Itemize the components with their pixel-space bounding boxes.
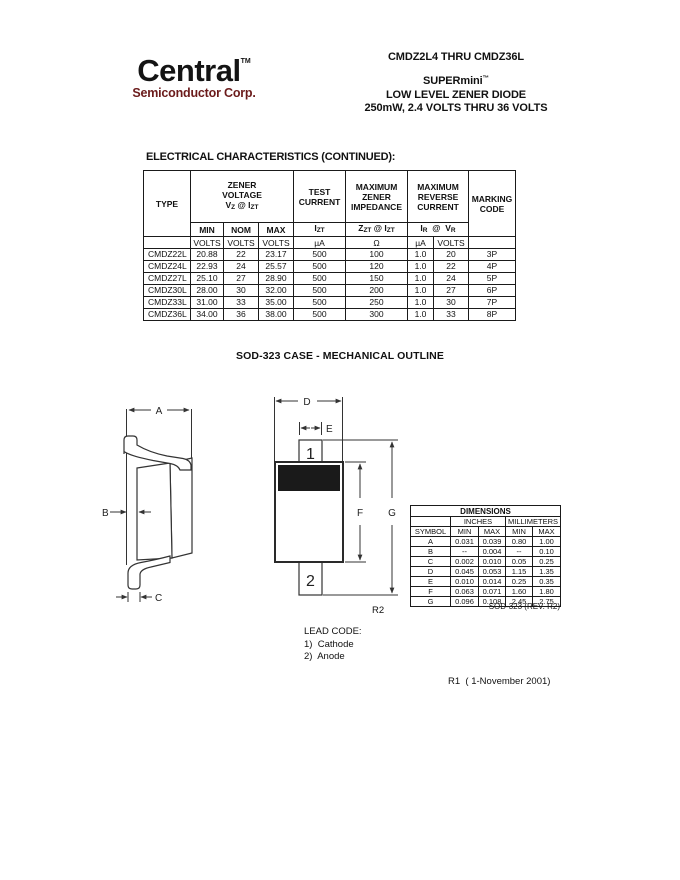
bottom-lead [128, 556, 170, 589]
mark-line2: CODE [469, 204, 515, 214]
cell-min: 20.88 [191, 249, 224, 261]
dim-mm-min: 0.80 [506, 537, 533, 547]
cell-vr: 20 [434, 249, 469, 261]
cell-max: 35.00 [259, 297, 294, 309]
product-specs: 250mW, 2.4 VOLTS THRU 36 VOLTS [345, 102, 567, 116]
cell-code: 8P [469, 309, 516, 321]
dim-label-f: F [357, 508, 363, 519]
head-symbol: SYMBOL [411, 527, 451, 537]
dim-symbol: C [411, 557, 451, 567]
dim-in-min: -- [451, 547, 479, 557]
family-trademark: ™ [483, 75, 489, 82]
table-row: CMDZ33L 31.00 33 35.00 500 250 1.0 30 7P [144, 297, 516, 309]
brand-name: CentralTM [117, 47, 271, 86]
cell-zzt: 200 [346, 285, 408, 297]
company-logo: CentralTM Semiconductor Corp. [117, 47, 271, 100]
units-blank-marking [469, 237, 516, 249]
dim-label-b: B [102, 508, 109, 519]
dim-label-g: G [388, 508, 396, 519]
cell-type: CMDZ36L [144, 309, 191, 321]
title-block: CMDZ2L4 THRU CMDZ36L SUPERmini™ LOW LEVE… [345, 51, 567, 116]
dim-row: C 0.002 0.010 0.05 0.25 [411, 557, 561, 567]
dim-in-max: 0.010 [479, 557, 506, 567]
dim-mm-min: 0.05 [506, 557, 533, 567]
col-header-marking-code: MARKING CODE [469, 171, 516, 237]
cell-type: CMDZ27L [144, 273, 191, 285]
group-millimeters: MILLIMETERS [506, 517, 561, 527]
cell-type: CMDZ33L [144, 297, 191, 309]
cell-nom: 24 [224, 261, 259, 273]
dim-label-e: E [326, 424, 333, 435]
test-line1: TEST [294, 187, 345, 197]
brand-name-text: Central [137, 53, 240, 88]
units-blank-type [144, 237, 191, 249]
head-mm-min: MIN [506, 527, 533, 537]
table-row: CMDZ27L 25.10 27 28.90 500 150 1.0 24 5P [144, 273, 516, 285]
cathode-band [278, 465, 340, 491]
vz-at: @ I [235, 200, 250, 210]
dim-mm-min: 1.15 [506, 567, 533, 577]
subheader-zzt: ZZT @ IZT [346, 223, 408, 237]
dim-label-d: D [303, 397, 310, 408]
cell-code: 4P [469, 261, 516, 273]
cell-min: 25.10 [191, 273, 224, 285]
dimensions-table: DIMENSIONS INCHES MILLIMETERS SYMBOL MIN… [410, 505, 561, 607]
cell-vr: 33 [434, 309, 469, 321]
dim-mm-min: -- [506, 547, 533, 557]
units-ua-izt: µA [294, 237, 346, 249]
cell-min: 22.93 [191, 261, 224, 273]
cell-vr: 27 [434, 285, 469, 297]
cell-code: 6P [469, 285, 516, 297]
package-side-view-drawing: A B C [95, 395, 265, 620]
dim-row: D 0.045 0.053 1.15 1.35 [411, 567, 561, 577]
cell-ir: 1.0 [408, 297, 434, 309]
head-in-min: MIN [451, 527, 479, 537]
col-header-max-reverse-current: MAXIMUM REVERSE CURRENT [408, 171, 469, 223]
dim-mm-min: 0.25 [506, 577, 533, 587]
test-line2: CURRENT [294, 197, 345, 207]
cell-ir: 1.0 [408, 249, 434, 261]
imp-line1: MAXIMUM [346, 182, 407, 192]
dim-symbol: D [411, 567, 451, 577]
cell-max: 32.00 [259, 285, 294, 297]
product-subtitles: SUPERmini™ LOW LEVEL ZENER DIODE 250mW, … [345, 72, 567, 116]
cell-nom: 33 [224, 297, 259, 309]
table-row: CMDZ30L 28.00 30 32.00 500 200 1.0 27 6P [144, 285, 516, 297]
imp-line3: IMPEDANCE [346, 202, 407, 212]
dim-in-min: 0.045 [451, 567, 479, 577]
imp-line2: ZENER [346, 192, 407, 202]
zener-line2: VOLTAGE [191, 190, 293, 200]
cell-vr: 30 [434, 297, 469, 309]
trademark-mark: TM [241, 58, 251, 65]
table-row: CMDZ24L 22.93 24 25.57 500 120 1.0 22 4P [144, 261, 516, 273]
units-ohm: Ω [346, 237, 408, 249]
cell-code: 3P [469, 249, 516, 261]
dim-mm-max: 1.80 [533, 587, 561, 597]
revision-note: R1 ( 1-November 2001) [448, 676, 550, 687]
units-volts-nom: VOLTS [224, 237, 259, 249]
cell-max: 28.90 [259, 273, 294, 285]
subheader-min: MIN [191, 223, 224, 237]
units-volts-max: VOLTS [259, 237, 294, 249]
cell-vr: 24 [434, 273, 469, 285]
units-volts-min: VOLTS [191, 237, 224, 249]
dim-in-max: 0.014 [479, 577, 506, 587]
col-header-zener-voltage: ZENER VOLTAGE VZ @ IZT [191, 171, 294, 223]
head-mm-max: MAX [533, 527, 561, 537]
subheader-max: MAX [259, 223, 294, 237]
cell-zzt: 100 [346, 249, 408, 261]
cell-ir: 1.0 [408, 285, 434, 297]
dim-in-min: 0.002 [451, 557, 479, 567]
head-in-max: MAX [479, 527, 506, 537]
table-row: CMDZ22L 20.88 22 23.17 500 100 1.0 20 3P [144, 249, 516, 261]
lead-code-title: LEAD CODE: [304, 626, 362, 639]
cell-izt: 500 [294, 285, 346, 297]
cell-nom: 36 [224, 309, 259, 321]
dim-row: F 0.063 0.071 1.60 1.80 [411, 587, 561, 597]
dim-in-min: 0.063 [451, 587, 479, 597]
body-side-face [170, 458, 192, 558]
dim-row: E 0.010 0.014 0.25 0.35 [411, 577, 561, 587]
cell-izt: 500 [294, 261, 346, 273]
cell-ir: 1.0 [408, 261, 434, 273]
col-header-max-impedance: MAXIMUM ZENER IMPEDANCE [346, 171, 408, 223]
vz-izt-sub: ZT [251, 204, 259, 211]
family-name: SUPERmini™ [345, 72, 567, 89]
dim-mm-max: 1.35 [533, 567, 561, 577]
cell-zzt: 150 [346, 273, 408, 285]
mechanical-outline-heading: SOD-323 CASE - MECHANICAL OUTLINE [0, 350, 680, 362]
cell-zzt: 120 [346, 261, 408, 273]
cell-nom: 30 [224, 285, 259, 297]
lead-code-anode: 2) Anode [304, 651, 362, 664]
dim-in-min: 0.031 [451, 537, 479, 547]
zener-line1: ZENER [191, 180, 293, 190]
product-type: LOW LEVEL ZENER DIODE [345, 89, 567, 103]
vz-at-izt: VZ @ IZT [191, 200, 293, 213]
subheader-ir-vr: IR @ VR [408, 223, 469, 237]
dim-symbol: E [411, 577, 451, 587]
units-ua-ir: µA [408, 237, 434, 249]
rev-line3: CURRENT [408, 202, 468, 212]
dim-mm-max: 0.10 [533, 547, 561, 557]
izt-sub: ZT [317, 227, 325, 234]
cell-izt: 500 [294, 309, 346, 321]
units-volts-vr: VOLTS [434, 237, 469, 249]
cell-max: 25.57 [259, 261, 294, 273]
vr-sub: R [451, 227, 456, 234]
group-blank [411, 517, 451, 527]
package-top-view-drawing: D E 1 2 F G [265, 385, 405, 617]
cell-max: 23.17 [259, 249, 294, 261]
cell-zzt: 300 [346, 309, 408, 321]
pin2-label: 2 [306, 573, 315, 590]
dim-label-c: C [155, 593, 162, 604]
cell-zzt: 250 [346, 297, 408, 309]
cell-izt: 500 [294, 297, 346, 309]
cell-type: CMDZ24L [144, 261, 191, 273]
dim-symbol: F [411, 587, 451, 597]
dim-in-max: 0.053 [479, 567, 506, 577]
cell-type: CMDZ22L [144, 249, 191, 261]
dim-in-min: 0.010 [451, 577, 479, 587]
dim-symbol: A [411, 537, 451, 547]
cell-ir: 1.0 [408, 273, 434, 285]
cell-min: 28.00 [191, 285, 224, 297]
family-text: SUPERmini [423, 75, 483, 87]
dim-symbol: B [411, 547, 451, 557]
zzt-at: @ I [371, 223, 386, 233]
dimensions-title: DIMENSIONS [411, 506, 561, 517]
dim-in-max: 0.004 [479, 547, 506, 557]
cell-vr: 22 [434, 261, 469, 273]
cell-max: 38.00 [259, 309, 294, 321]
rev-line1: MAXIMUM [408, 182, 468, 192]
cell-min: 34.00 [191, 309, 224, 321]
rev-line2: REVERSE [408, 192, 468, 202]
cell-min: 31.00 [191, 297, 224, 309]
dim-row: A 0.031 0.039 0.80 1.00 [411, 537, 561, 547]
dim-mm-max: 1.00 [533, 537, 561, 547]
cell-izt: 500 [294, 249, 346, 261]
cell-nom: 27 [224, 273, 259, 285]
part-range-title: CMDZ2L4 THRU CMDZ36L [345, 51, 567, 63]
dim-label-a: A [156, 406, 163, 417]
dim-mm-min: 1.60 [506, 587, 533, 597]
subheader-nom: NOM [224, 223, 259, 237]
dim-row: B -- 0.004 -- 0.10 [411, 547, 561, 557]
col-header-type: TYPE [144, 171, 191, 237]
dims-table-footnote: SOD-323 (REV. R2) [410, 602, 560, 611]
lead-code-cathode: 1) Cathode [304, 639, 362, 652]
lead-code-block: LEAD CODE: 1) Cathode 2) Anode [304, 626, 362, 664]
pin1-label: 1 [306, 446, 315, 463]
col-header-test-current: TEST CURRENT [294, 171, 346, 223]
brand-tagline: Semiconductor Corp. [117, 86, 271, 100]
cell-nom: 22 [224, 249, 259, 261]
cell-code: 5P [469, 273, 516, 285]
cell-type: CMDZ30L [144, 285, 191, 297]
cell-ir: 1.0 [408, 309, 434, 321]
ir-at-vr: @ V [427, 223, 450, 233]
mark-line1: MARKING [469, 194, 515, 204]
dim-mm-max: 0.25 [533, 557, 561, 567]
electrical-characteristics-table: TYPE ZENER VOLTAGE VZ @ IZT TEST CURRENT… [143, 170, 516, 321]
cell-code: 7P [469, 297, 516, 309]
electrical-characteristics-heading: ELECTRICAL CHARACTERISTICS (CONTINUED): [146, 151, 395, 163]
group-inches: INCHES [451, 517, 506, 527]
r2-annotation: R2 [372, 605, 384, 616]
dim-in-max: 0.039 [479, 537, 506, 547]
table-row: CMDZ36L 34.00 36 38.00 500 300 1.0 33 8P [144, 309, 516, 321]
zzt-izt-sub: ZT [387, 227, 395, 234]
dim-mm-max: 0.35 [533, 577, 561, 587]
subheader-izt: IZT [294, 223, 346, 237]
dim-in-max: 0.071 [479, 587, 506, 597]
cell-izt: 500 [294, 273, 346, 285]
